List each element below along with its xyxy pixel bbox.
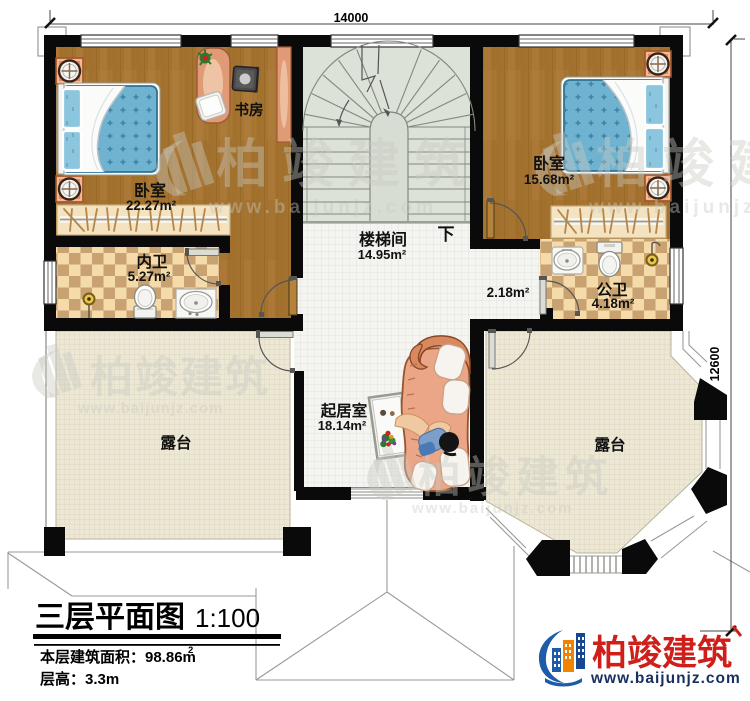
- svg-text:2.18m²: 2.18m²: [487, 285, 530, 300]
- svg-text:柏竣建筑: 柏竣建筑: [418, 454, 614, 502]
- svg-text:书房: 书房: [235, 101, 264, 119]
- svg-text:www.baijunjz.com: www.baijunjz.com: [77, 400, 223, 417]
- svg-text:下: 下: [438, 225, 455, 244]
- svg-text:柏竣建筑: 柏竣建筑: [596, 136, 750, 194]
- svg-text:www.baijunjz.com: www.baijunjz.com: [588, 197, 750, 218]
- svg-text:2: 2: [188, 645, 193, 656]
- svg-text:www.baijunjz.com: www.baijunjz.com: [590, 670, 741, 687]
- svg-text:22.27m²: 22.27m²: [126, 198, 177, 213]
- svg-text:4.18m²: 4.18m²: [592, 296, 635, 311]
- svg-text:柏竣建筑: 柏竣建筑: [216, 136, 480, 194]
- svg-text:卧室: 卧室: [533, 154, 565, 173]
- svg-text:12600: 12600: [708, 347, 722, 382]
- svg-text:18.14m²: 18.14m²: [318, 418, 367, 433]
- svg-text:5.27m²: 5.27m²: [128, 269, 171, 284]
- svg-text:14.95m²: 14.95m²: [358, 247, 407, 262]
- svg-text:14000: 14000: [334, 11, 369, 25]
- svg-text:露台: 露台: [160, 433, 191, 452]
- svg-text:15.68m²: 15.68m²: [524, 172, 575, 187]
- svg-text:柏竣建筑: 柏竣建筑: [90, 354, 270, 402]
- svg-text:三层平面图: 三层平面图: [35, 601, 185, 634]
- svg-text:本层建筑面积：98.86m: 本层建筑面积：98.86m: [40, 648, 196, 666]
- svg-text:柏竣建筑: 柏竣建筑: [592, 633, 732, 673]
- svg-text:层高：3.3m: 层高：3.3m: [40, 670, 119, 688]
- svg-text:www.baijunjz.com: www.baijunjz.com: [208, 197, 437, 218]
- svg-text:www.baijunjz.com: www.baijunjz.com: [411, 500, 573, 517]
- svg-text:1:100: 1:100: [195, 603, 260, 633]
- svg-text:露台: 露台: [594, 435, 625, 454]
